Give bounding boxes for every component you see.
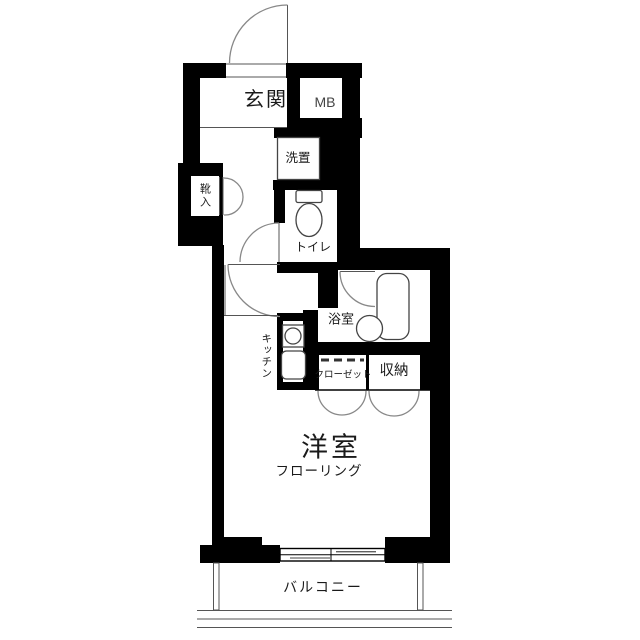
floor-plan: 玄関 MB 洗置 靴入 トイレ 浴室 キッチン クローゼット 収納 洋室 フロー… bbox=[0, 0, 640, 640]
label-toilet: トイレ bbox=[295, 241, 331, 253]
label-western-room: 洋室 bbox=[301, 435, 361, 462]
label-shoe-cabinet: 靴入 bbox=[199, 183, 210, 209]
balcony-railing-icon bbox=[197, 563, 452, 628]
entrance-door-icon bbox=[226, 5, 288, 77]
label-storage: 収納 bbox=[380, 364, 409, 379]
balcony-window-icon bbox=[280, 549, 385, 562]
stove-icon bbox=[282, 351, 306, 379]
room-door-icon bbox=[224, 265, 280, 317]
label-meter-box: MB bbox=[315, 95, 336, 109]
label-closet: クローゼット bbox=[314, 370, 371, 380]
toilet-icon bbox=[296, 191, 322, 237]
closet-doors-icon bbox=[318, 391, 419, 416]
label-balcony: バルコニー bbox=[283, 580, 363, 594]
bathroom-door-icon bbox=[340, 272, 375, 307]
label-genkan: 玄関 bbox=[244, 90, 288, 110]
bath-drain-icon bbox=[357, 316, 383, 342]
label-flooring: フローリング bbox=[276, 464, 363, 478]
kitchen-sink-icon bbox=[283, 325, 305, 347]
toilet-door-icon bbox=[240, 223, 279, 262]
label-washer: 洗置 bbox=[285, 152, 310, 165]
label-kitchen: キッチン bbox=[261, 333, 272, 379]
shoe-cabinet-doors-icon bbox=[220, 177, 244, 215]
label-bathroom: 浴室 bbox=[328, 313, 354, 326]
